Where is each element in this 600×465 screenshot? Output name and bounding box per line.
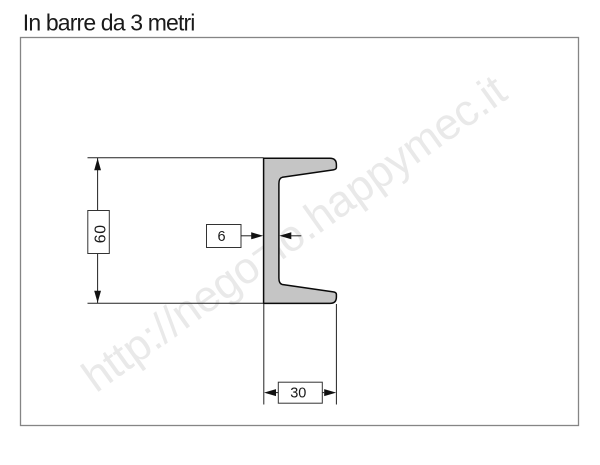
svg-text:6: 6 (218, 229, 226, 245)
svg-text:In barre da 3 metri: In barre da 3 metri (23, 10, 195, 36)
svg-text:30: 30 (290, 386, 306, 402)
svg-text:60: 60 (93, 224, 110, 243)
svg-text:http://negozio.happymec.it: http://negozio.happymec.it (73, 66, 515, 402)
